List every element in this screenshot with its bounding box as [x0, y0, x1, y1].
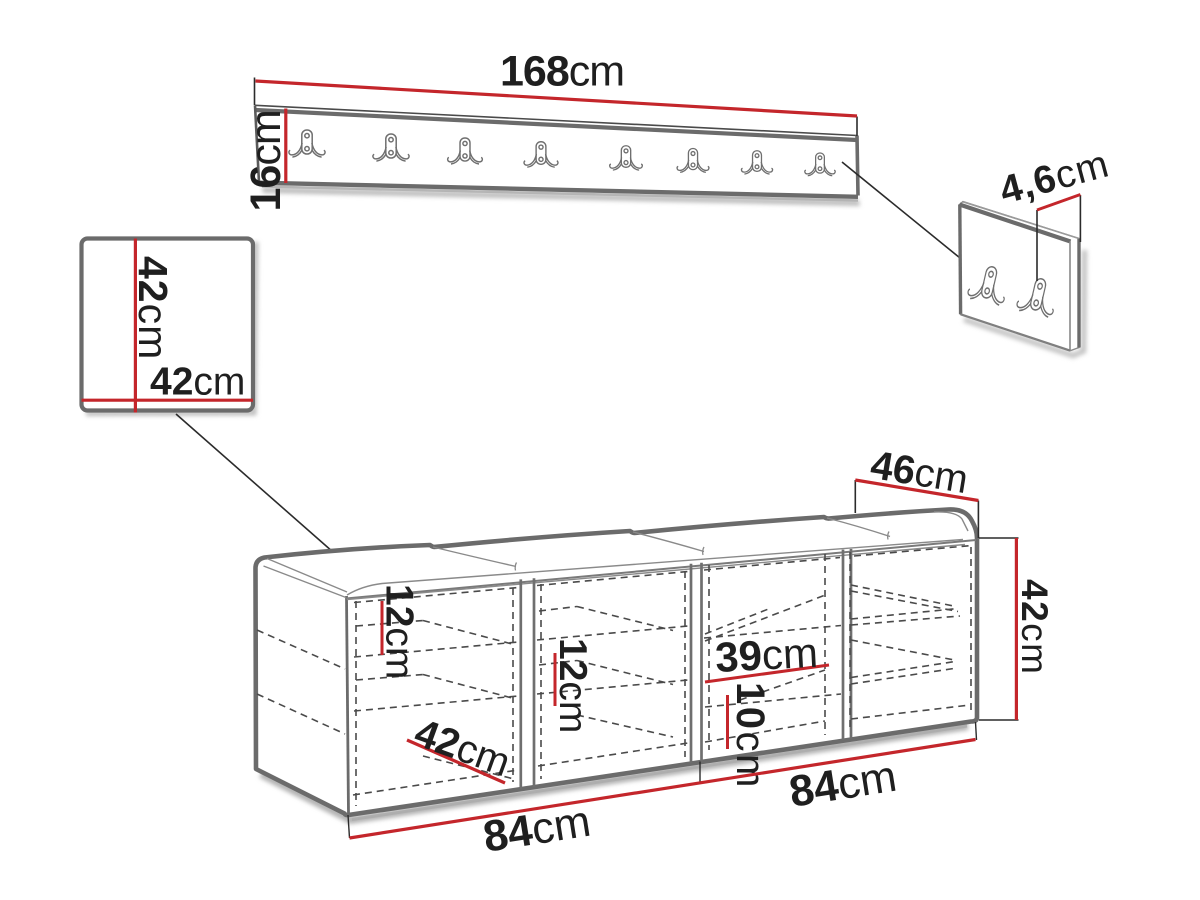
svg-text:42cm: 42cm	[1014, 579, 1055, 675]
svg-text:12cm: 12cm	[551, 638, 594, 733]
svg-text:168cm: 168cm	[500, 48, 624, 96]
svg-text:39cm: 39cm	[714, 629, 819, 681]
svg-text:12cm: 12cm	[378, 584, 421, 679]
svg-text:16cm: 16cm	[242, 110, 290, 211]
svg-text:42cm: 42cm	[150, 361, 245, 404]
svg-text:42cm: 42cm	[130, 256, 176, 360]
